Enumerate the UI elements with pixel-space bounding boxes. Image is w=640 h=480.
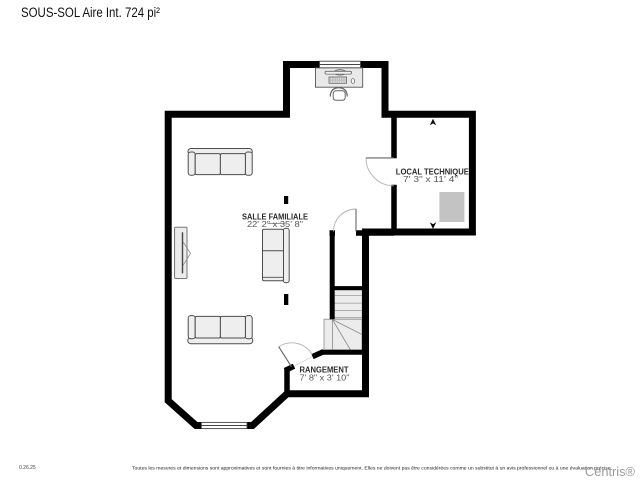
svg-text:0.26.25: 0.26.25 [19, 465, 36, 471]
svg-text:7' 8" x 3' 10": 7' 8" x 3' 10" [300, 372, 350, 382]
svg-text:22' 2" x 35' 8": 22' 2" x 35' 8" [247, 219, 303, 229]
svg-text:Centris®: Centris® [585, 465, 636, 479]
svg-text:Toutes les mesures et dimensio: Toutes les mesures et dimensions sont ap… [132, 466, 612, 472]
svg-text:SOUS-SOL Aire Int. 724 pi²: SOUS-SOL Aire Int. 724 pi² [21, 5, 160, 20]
svg-text:7' 3" x 11' 4": 7' 3" x 11' 4" [403, 174, 458, 184]
